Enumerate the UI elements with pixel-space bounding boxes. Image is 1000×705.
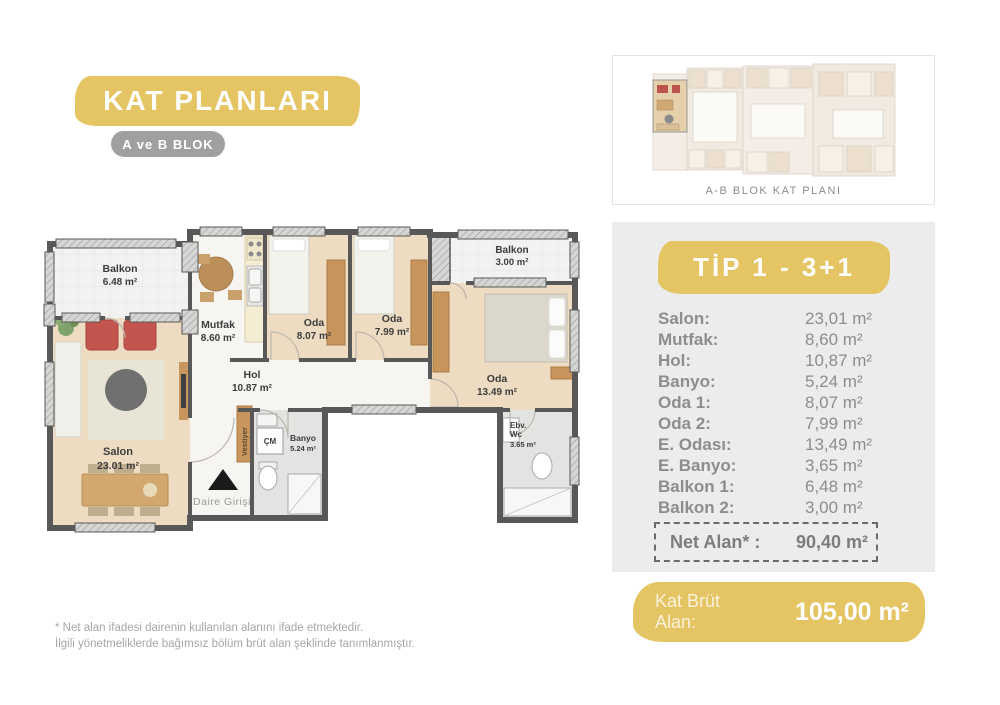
row-label: Oda 1: bbox=[658, 393, 711, 413]
row-value: 7,99 m² bbox=[805, 414, 863, 434]
room-label-bathroom: Banyo bbox=[290, 433, 316, 443]
table-row: Oda 2: 7,99 m² bbox=[658, 414, 880, 435]
row-label: Banyo: bbox=[658, 372, 716, 392]
wardrobe bbox=[433, 292, 449, 372]
room-label-oda2: Oda bbox=[382, 313, 403, 325]
sofa bbox=[55, 342, 81, 437]
coffee-table bbox=[105, 369, 147, 411]
room-label-balcony2: Balkon bbox=[495, 245, 528, 256]
row-value: 8,07 m² bbox=[805, 393, 863, 413]
table-row: Banyo: 5,24 m² bbox=[658, 372, 880, 393]
pillow bbox=[549, 330, 565, 358]
room-area-ensuite: 3.65 m² bbox=[510, 440, 536, 449]
room-label-salon: Salon bbox=[103, 446, 133, 458]
chair bbox=[114, 507, 134, 516]
page-title: KAT PLANLARI bbox=[103, 85, 332, 117]
tv-icon bbox=[181, 374, 186, 408]
chair bbox=[228, 290, 242, 300]
table-row: Balkon 1: 6,48 m² bbox=[658, 477, 880, 498]
unit-type-banner: TİP 1 - 3+1 bbox=[658, 241, 890, 294]
mini-floor-plan bbox=[623, 62, 926, 182]
table-row: Balkon 2: 3,00 m² bbox=[658, 498, 880, 519]
net-area-box: Net Alan* : 90,40 m² bbox=[654, 522, 878, 562]
toilet bbox=[532, 453, 552, 479]
room-area-oda1: 8.07 m² bbox=[297, 331, 332, 342]
row-value: 8,60 m² bbox=[805, 330, 863, 350]
row-value: 10,87 m² bbox=[805, 351, 872, 371]
footnote-line-1: * Net alan ifadesi dairenin kullanılan a… bbox=[55, 621, 415, 637]
gross-area-label: Kat Brüt Alan: bbox=[655, 591, 720, 633]
row-label: Oda 2: bbox=[658, 414, 711, 434]
row-label: E. Banyo: bbox=[658, 456, 736, 476]
row-label: Hol: bbox=[658, 351, 691, 371]
net-area-label: Net Alan* : bbox=[670, 532, 760, 553]
row-value: 6,48 m² bbox=[805, 477, 863, 497]
pillow bbox=[549, 298, 565, 326]
net-area-value: 90,40 m² bbox=[796, 532, 868, 553]
wall-column bbox=[430, 235, 450, 283]
row-value: 23,01 m² bbox=[805, 309, 872, 329]
row-value: 13,49 m² bbox=[805, 435, 872, 455]
stove bbox=[247, 238, 263, 260]
floor-plan-page: KAT PLANLARI A ve B BLOK bbox=[0, 0, 1000, 705]
block-overview-box: A-B BLOK KAT PLANI bbox=[612, 55, 935, 205]
room-area-balcony2: 3.00 m² bbox=[496, 257, 529, 268]
row-label: Balkon 2: bbox=[658, 498, 735, 518]
chair bbox=[88, 507, 108, 516]
table-row: Mutfak: 8,60 m² bbox=[658, 330, 880, 351]
gross-area-banner: Kat Brüt Alan: 105,00 m² bbox=[633, 582, 925, 642]
room-area-hall: 10.87 m² bbox=[232, 383, 273, 394]
washing-machine-label: ÇM bbox=[264, 437, 277, 446]
pillow bbox=[358, 239, 390, 251]
room-area-salon: 23.01 m² bbox=[97, 460, 140, 472]
row-label: Mutfak: bbox=[658, 330, 718, 350]
chair bbox=[200, 292, 214, 302]
room-label-oda1: Oda bbox=[304, 317, 325, 329]
room-area-kitchen: 8.60 m² bbox=[201, 333, 236, 344]
pillow bbox=[273, 239, 305, 251]
room-area-master: 13.49 m² bbox=[477, 387, 518, 398]
block-badge: A ve B BLOK bbox=[111, 131, 225, 157]
table-row: Salon: 23,01 m² bbox=[658, 309, 880, 330]
room-label-master: Oda bbox=[487, 373, 508, 385]
room-label-ensuite-2: Wc bbox=[510, 430, 523, 439]
table-row: Hol: 10,87 m² bbox=[658, 351, 880, 372]
entrance-label: Daire Girişi bbox=[193, 496, 251, 508]
overview-caption: A-B BLOK KAT PLANI bbox=[613, 185, 934, 197]
row-value: 3,65 m² bbox=[805, 456, 863, 476]
unit-floor-plan: Balkon 6.48 m² Salon 23.01 m² Mutfak 8.6… bbox=[30, 222, 590, 534]
row-label: E. Odası: bbox=[658, 435, 732, 455]
mini-plan-highlighted-unit bbox=[653, 80, 687, 132]
area-table: Salon: 23,01 m² Mutfak: 8,60 m² Hol: 10,… bbox=[658, 309, 880, 519]
vestiyer-label: Vestiyer bbox=[240, 427, 249, 456]
table-row: E. Banyo: 3,65 m² bbox=[658, 456, 880, 477]
footnote: * Net alan ifadesi dairenin kullanılan a… bbox=[55, 621, 415, 652]
armchair bbox=[124, 320, 156, 350]
gross-area-value: 105,00 m² bbox=[795, 598, 909, 627]
chair bbox=[198, 254, 210, 264]
toilet bbox=[259, 466, 277, 490]
row-value: 5,24 m² bbox=[805, 372, 863, 392]
room-label-hall: Hol bbox=[244, 369, 261, 381]
row-label: Salon: bbox=[658, 309, 710, 329]
room-label-ensuite-1: Ebv. bbox=[510, 421, 526, 430]
wardrobe bbox=[411, 260, 427, 345]
footnote-line-2: İlgili yönetmeliklerde bağımsız bölüm br… bbox=[55, 637, 415, 653]
room-label-balcony1: Balkon bbox=[102, 263, 137, 275]
armchair bbox=[86, 320, 118, 350]
chair bbox=[140, 464, 160, 473]
row-value: 3,00 m² bbox=[805, 498, 863, 518]
room-hall bbox=[190, 360, 430, 410]
chair bbox=[140, 507, 160, 516]
unit-type-title: TİP 1 - 3+1 bbox=[693, 252, 855, 283]
block-badge-label: A ve B BLOK bbox=[122, 137, 213, 152]
washbasin bbox=[257, 414, 277, 426]
room-area-balcony1: 6.48 m² bbox=[103, 277, 138, 288]
room-area-oda2: 7.99 m² bbox=[375, 327, 410, 338]
page-title-banner: KAT PLANLARI bbox=[75, 76, 360, 126]
room-label-kitchen: Mutfak bbox=[201, 319, 235, 331]
room-area-bathroom: 5.24 m² bbox=[290, 444, 316, 453]
table-row: E. Odası: 13,49 m² bbox=[658, 435, 880, 456]
table-row: Oda 1: 8,07 m² bbox=[658, 393, 880, 414]
row-label: Balkon 1: bbox=[658, 477, 735, 497]
